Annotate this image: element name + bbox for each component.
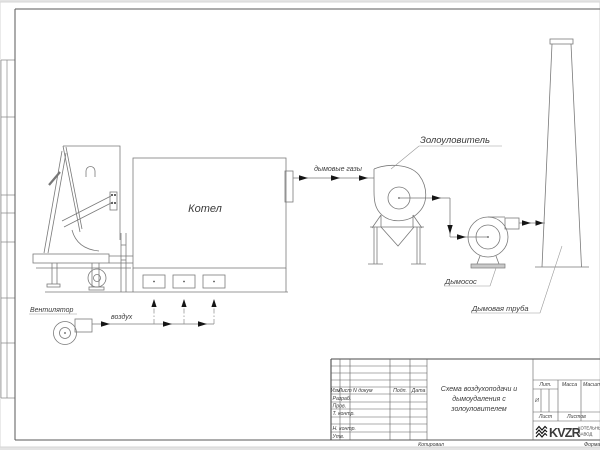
row-prov: Пров. bbox=[333, 404, 347, 410]
massa-label: Масса bbox=[562, 382, 577, 388]
col-data: Дата bbox=[411, 388, 426, 394]
ash-collector-label: Золоуловитель bbox=[420, 135, 490, 146]
col-list: Лист bbox=[337, 388, 352, 394]
chimney-label: Дымовая труба bbox=[471, 304, 529, 313]
row-t-kontr: Т. контр. bbox=[333, 411, 355, 417]
masshtab-label: Масштаб bbox=[583, 382, 600, 388]
col-doc-num: N докум bbox=[353, 388, 373, 394]
air-label: воздух bbox=[111, 313, 133, 321]
format-label: Формат bbox=[584, 442, 600, 448]
col-podp: Подп. bbox=[393, 388, 407, 394]
fan-label: Вентилятор bbox=[30, 307, 73, 314]
smoke-exhauster-label: Дымосос bbox=[444, 277, 477, 286]
flue-gases-label: дымовые газы bbox=[314, 165, 363, 173]
exhauster-base bbox=[471, 264, 505, 268]
paper-sheet bbox=[0, 2, 600, 447]
doc-title-line3: золоуловителем bbox=[450, 406, 507, 413]
row-razrab: Разраб. bbox=[333, 396, 352, 402]
row-utv: Утв. bbox=[333, 434, 345, 440]
row-n-kontr: Н. контр. bbox=[333, 426, 356, 432]
kvzr-logo-sub1: КОТЕЛЬНЫЙ bbox=[578, 426, 600, 431]
engineering-drawing: Котел Вентилятор воздух дымовые газы З bbox=[0, 0, 600, 450]
doc-title-line1: Схема воздухоподачи и bbox=[441, 385, 518, 393]
lit-label: Лит. bbox=[538, 382, 551, 388]
list-label: Лист bbox=[538, 414, 553, 420]
boiler-label: Котел bbox=[188, 203, 222, 215]
kvzr-logo-sub2: ЗАВОД bbox=[578, 432, 592, 437]
doc-title-line2: дымоудаления с bbox=[452, 395, 506, 403]
drawing-sheet-stage: Котел Вентилятор воздух дымовые газы З bbox=[0, 0, 600, 450]
listov-label: Листов bbox=[566, 414, 586, 420]
lit-value: И bbox=[535, 398, 539, 404]
kopiroval-label: Копировал bbox=[418, 442, 444, 448]
kvzr-logo-text: KVZR bbox=[549, 426, 581, 440]
